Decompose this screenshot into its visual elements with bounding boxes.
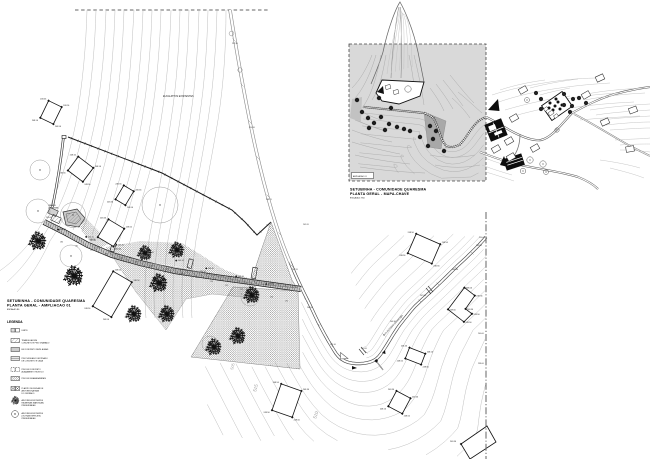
svg-text:248.56: 248.56 [388, 389, 395, 391]
svg-text:248.56: 248.56 [115, 249, 122, 251]
svg-text:248.56: 248.56 [294, 419, 301, 421]
svg-text:248.56: 248.56 [401, 346, 408, 348]
svg-text:AMPLIACAO 01: AMPLIACAO 01 [353, 175, 367, 178]
svg-text:248.56: 248.56 [465, 322, 472, 324]
svg-text:PRESERVADAS: PRESERVADAS [22, 404, 37, 407]
svg-text:248.56: 248.56 [442, 242, 449, 244]
svg-text:LIMITE: LIMITE [22, 330, 29, 332]
svg-text:248.56: 248.56 [55, 126, 62, 128]
svg-text:252.30: 252.30 [232, 43, 238, 45]
svg-text:246.00: 246.00 [307, 307, 313, 309]
svg-text:248.56: 248.56 [380, 408, 387, 410]
svg-text:246.10: 246.10 [60, 229, 66, 231]
svg-text:238.00: 238.00 [478, 363, 484, 365]
svg-text:248.56: 248.56 [412, 396, 419, 398]
svg-text:515: 515 [252, 383, 259, 392]
svg-text:248.56: 248.56 [107, 201, 114, 203]
svg-text:249.20: 249.20 [303, 224, 309, 226]
svg-text:248.56: 248.56 [40, 99, 47, 101]
svg-text:ESCALA 1:750: ESCALA 1:750 [350, 197, 365, 200]
svg-text:247.60: 247.60 [420, 295, 426, 297]
svg-text:248.56: 248.56 [95, 166, 102, 168]
svg-text:248.56: 248.56 [303, 389, 310, 391]
svg-text:248.56: 248.56 [133, 280, 140, 282]
svg-text:248.56: 248.56 [135, 189, 142, 191]
svg-text:248.56: 248.56 [433, 266, 440, 268]
svg-text:247.20: 247.20 [292, 269, 298, 271]
svg-text:248.56: 248.56 [450, 441, 457, 443]
svg-text:248.56: 248.56 [474, 314, 481, 316]
svg-text:ESCALA 1:80: ESCALA 1:80 [7, 308, 20, 311]
svg-text:PLANTA GERAL - AMPLIACAO 01: PLANTA GERAL - AMPLIACAO 01 [7, 304, 71, 308]
svg-text:DO CERRADO: DO CERRADO [22, 392, 35, 395]
svg-text:CONCRETO E PISO GRAMADO: CONCRETO E PISO GRAMADO [22, 342, 50, 345]
svg-text:505: 505 [229, 362, 236, 370]
svg-text:250.00: 250.00 [479, 237, 485, 239]
svg-text:248.56: 248.56 [476, 296, 483, 298]
svg-text:248.56: 248.56 [404, 416, 411, 418]
svg-text:PLANTA GERAL - MAPA-CHAVE: PLANTA GERAL - MAPA-CHAVE [350, 192, 410, 196]
svg-text:ACABAMENTO RUSTICO: ACABAMENTO RUSTICO [22, 371, 45, 374]
svg-text:SETUBINHA - COMUNIDADE QUARESM: SETUBINHA - COMUNIDADE QUARESMA [7, 299, 85, 303]
svg-text:248.56: 248.56 [115, 183, 122, 185]
svg-text:EUCALIPTOS EXISTENTES: EUCALIPTOS EXISTENTES [163, 95, 194, 98]
svg-text:245.00: 245.00 [361, 348, 367, 350]
svg-text:246.10: 246.10 [200, 271, 206, 273]
svg-text:248.56: 248.56 [408, 232, 415, 234]
svg-text:248.56: 248.56 [466, 288, 473, 290]
svg-text:EM CONCRETO NIVEL A MAIS: EM CONCRETO NIVEL A MAIS [22, 348, 50, 351]
svg-text:248.56: 248.56 [115, 269, 122, 271]
svg-text:248.90: 248.90 [452, 269, 458, 271]
svg-text:248.56: 248.56 [423, 367, 430, 369]
svg-text:248.56: 248.56 [63, 105, 70, 107]
svg-text:248.56: 248.56 [427, 352, 434, 354]
svg-text:245.10: 245.10 [330, 344, 336, 346]
svg-text:248.56: 248.56 [397, 361, 404, 363]
svg-text:248.75: 248.75 [266, 199, 272, 201]
svg-text:PRESERVADAS: PRESERVADAS [22, 417, 37, 420]
svg-text:248.56: 248.56 [84, 308, 91, 310]
svg-text:248.56: 248.56 [399, 255, 406, 257]
svg-text:248.56: 248.56 [59, 172, 66, 174]
svg-text:240.00: 240.00 [478, 333, 484, 335]
svg-text:248.56: 248.56 [70, 155, 77, 157]
svg-text:510: 510 [312, 410, 319, 419]
svg-text:247.80: 247.80 [90, 240, 96, 242]
svg-text:182: 182 [90, 250, 93, 252]
svg-text:249.00: 249.00 [46, 217, 52, 219]
svg-text:246.30: 246.30 [390, 321, 396, 323]
svg-text:LEGENDA: LEGENDA [7, 320, 23, 324]
svg-text:248.56: 248.56 [100, 217, 107, 219]
svg-text:PISO EM GRAMA BATATAIS: PISO EM GRAMA BATATAIS [22, 377, 47, 380]
svg-text:248.56: 248.56 [84, 184, 91, 186]
svg-text:248.56: 248.56 [263, 412, 270, 414]
svg-text:180: 180 [60, 242, 63, 244]
svg-text:249.80: 249.80 [476, 245, 482, 247]
svg-text:183: 183 [105, 254, 108, 256]
svg-text:246.90: 246.90 [140, 258, 146, 260]
svg-text:248.56: 248.56 [273, 382, 280, 384]
svg-text:248.56: 248.56 [127, 207, 134, 209]
svg-text:248.56: 248.56 [450, 309, 457, 311]
svg-text:248.56: 248.56 [103, 319, 110, 321]
svg-text:250.10: 250.10 [249, 127, 255, 129]
svg-text:248.56: 248.56 [467, 309, 474, 311]
svg-text:248.56: 248.56 [32, 120, 39, 122]
svg-text:248.56: 248.56 [126, 227, 133, 229]
svg-text:DE CONCRETO E CASA: DE CONCRETO E CASA [22, 360, 44, 363]
